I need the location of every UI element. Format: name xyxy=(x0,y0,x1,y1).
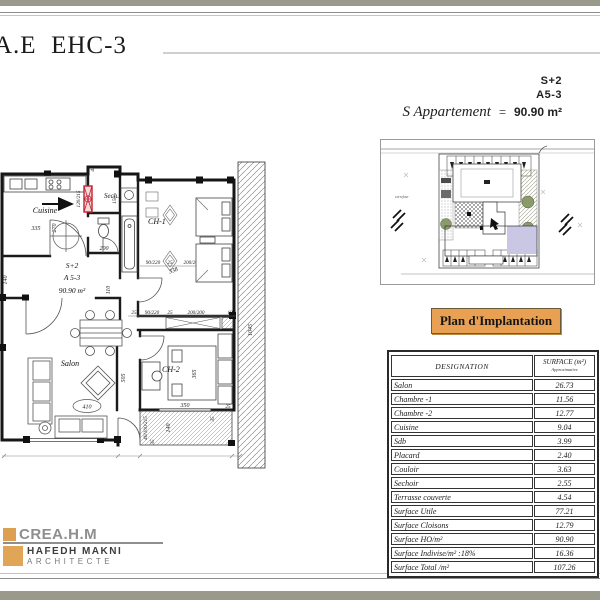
dim-a1: 90/220 xyxy=(146,260,161,266)
col-surface-label: SURFACE (m²) xyxy=(543,358,586,366)
surface-cell: 12.77 xyxy=(534,407,595,419)
core-mark-2 xyxy=(467,212,471,216)
surface-cell: 9.04 xyxy=(534,421,595,433)
designation-cell: Placard xyxy=(391,449,533,461)
table-row: Surface Total /m² 107.26 xyxy=(391,561,595,573)
designation-cell: Sechoir xyxy=(391,477,533,489)
room-salon: Salon xyxy=(61,359,79,368)
designation-cell: Salon xyxy=(391,379,533,391)
red-vent-window xyxy=(84,186,92,212)
dim-b3: 200/200 xyxy=(187,310,204,316)
room-cuisine: Cuisine xyxy=(33,206,58,215)
surface-cell: 107.26 xyxy=(534,561,595,573)
table-row: Cuisine 9.04 xyxy=(391,421,595,433)
table-row: Sechoir 2.55 xyxy=(391,477,595,489)
dim-410: 410 xyxy=(83,404,92,411)
dim-338: 338 xyxy=(167,267,178,276)
col-designation: DESIGNATION xyxy=(391,355,533,377)
bathtub xyxy=(122,216,137,272)
street-curve xyxy=(539,146,547,153)
table-row: Sdb 3.99 xyxy=(391,435,595,447)
plan-implantation-banner: Plan d'Implantation xyxy=(431,308,561,334)
designation-cell: Sdb xyxy=(391,435,533,447)
designation-cell: Surface Utile xyxy=(391,505,533,517)
unit-info-block: S+2 A5-3 xyxy=(536,74,562,102)
dim-b0: 25 xyxy=(131,310,137,316)
planter-box-2 xyxy=(441,190,451,198)
surface-cell: 90.90 xyxy=(534,533,595,545)
logo-name-row: HAFEDH MAKNI ARCHITECTE xyxy=(3,546,173,567)
banner-label: Plan d'Implantation xyxy=(440,313,552,329)
table-row: Chambre -2 12.77 xyxy=(391,407,595,419)
designation-cell: Cuisine xyxy=(391,421,533,433)
kitchen-counter xyxy=(4,176,86,192)
col-surface: SURFACE (m²) Approximative xyxy=(534,355,595,377)
floor-plan-panel: 1045 40/100/215 140 35 35 xyxy=(0,158,270,473)
table-row: Salon 26.73 xyxy=(391,379,595,391)
plan-unit-label: S+2 A 5-3 90.90 m² xyxy=(59,261,86,295)
dim-365: 365 xyxy=(192,370,198,380)
dim-505: 505 xyxy=(121,374,127,383)
bottom-border-band xyxy=(0,591,600,600)
road-label: carrefour xyxy=(395,195,409,199)
rug-diamond xyxy=(81,366,115,400)
site-plan-drawing: carrefour xyxy=(381,140,594,284)
neighbor-wall-hatch xyxy=(238,162,265,468)
unit-code: A5-3 xyxy=(536,88,562,102)
top-border-band xyxy=(0,0,600,6)
apartment-label: S Appartement xyxy=(402,104,490,121)
dim-200a: 200 xyxy=(100,246,109,252)
unit-type: S+2 xyxy=(536,74,562,88)
highlighted-unit xyxy=(507,226,537,254)
dim-410-bubble: 410 xyxy=(73,400,101,413)
top-rule-2 xyxy=(0,15,600,16)
logo-square-small xyxy=(3,528,16,541)
table-row: Placard 2.40 xyxy=(391,449,595,461)
dim-335: 335 xyxy=(31,226,41,232)
designation-cell: Couloir xyxy=(391,463,533,475)
dim-25e: 25 xyxy=(225,404,231,410)
dim-150: 150 xyxy=(112,196,118,204)
room-ch2: CH-2 xyxy=(162,365,180,374)
logo-brand: CREA.H.M xyxy=(19,528,97,541)
designation-cell: Surface Indivise/m² :18% xyxy=(391,547,533,559)
architect-name: HAFEDH MAKNI xyxy=(27,546,122,557)
dim-b4: 10 xyxy=(227,310,233,316)
room-ch1: CH-1 xyxy=(148,217,166,226)
placard xyxy=(166,318,233,329)
dim-35a: 35 xyxy=(210,416,216,422)
dim-b1: 90/220 xyxy=(145,310,160,316)
designation-cell: Surface Total /m² xyxy=(391,561,533,573)
surface-cell: 3.99 xyxy=(534,435,595,447)
top-rule-1 xyxy=(0,12,600,13)
bottom-dim-line xyxy=(2,454,242,458)
surface-cell: 3.63 xyxy=(534,463,595,475)
apartment-area: 90.90 m² xyxy=(514,105,562,119)
designation-cell: Surface HO/m² xyxy=(391,533,533,545)
logo-square-large xyxy=(3,546,23,566)
plan-unit-type: S+2 xyxy=(66,261,79,270)
core-mark xyxy=(484,180,490,184)
dim-120-215: 120/215 xyxy=(76,190,82,207)
planter-box-1 xyxy=(441,178,451,183)
surface-cell: 12.79 xyxy=(534,519,595,531)
floor-plan-drawing: 1045 40/100/215 140 35 35 xyxy=(0,158,270,473)
dim-40-100-215: 40/100/215 xyxy=(142,416,149,440)
bottom-rule-2 xyxy=(0,578,600,579)
page-title: A.E EHC-3 xyxy=(0,32,127,60)
road-hash-right xyxy=(559,214,573,235)
ch1-beds xyxy=(196,198,232,282)
logo-brand-row: CREA.H.M xyxy=(3,528,163,544)
architect-title: ARCHITECTE xyxy=(27,557,122,567)
designation-cell: Terrasse couverte xyxy=(391,491,533,503)
plan-unit-code: A 5-3 xyxy=(63,273,81,282)
table-row: Surface Indivise/m² :18% 16.36 xyxy=(391,547,595,559)
surface-table: DESIGNATION SURFACE (m²) Approximative S… xyxy=(387,350,599,578)
table-header-row: DESIGNATION SURFACE (m²) Approximative xyxy=(391,355,595,377)
dim-270: 270 xyxy=(52,224,58,233)
surface-table-body: Salon 26.73 Chambre -1 11.56 Chambre -2 … xyxy=(391,379,595,573)
plan-unit-area: 90.90 m² xyxy=(59,286,86,295)
surface-cell: 2.40 xyxy=(534,449,595,461)
toilet xyxy=(98,218,109,238)
table-row: Terrasse couverte 4.54 xyxy=(391,491,595,503)
table-row: Surface Cloisons 12.79 xyxy=(391,519,595,531)
dim-350: 350 xyxy=(180,403,190,409)
designation-cell: Surface Cloisons xyxy=(391,519,533,531)
dim-b2: 25 xyxy=(167,310,173,316)
designation-cell: Chambre -2 xyxy=(391,407,533,419)
sofa-left xyxy=(28,358,52,424)
site-plan-panel: carrefour xyxy=(380,139,595,285)
designation-cell: Chambre -1 xyxy=(391,393,533,405)
dim-35b: 35 xyxy=(150,439,156,445)
surface-cell: 11.56 xyxy=(534,393,595,405)
col-surface-sub: Approximative xyxy=(537,366,592,373)
dim-140-left: 140 xyxy=(2,276,9,285)
dim-45: 45 xyxy=(89,166,96,172)
table-row: Surface HO/m² 90.90 xyxy=(391,533,595,545)
table-row: Chambre -1 11.56 xyxy=(391,393,595,405)
washbasin xyxy=(121,188,137,202)
tree-left xyxy=(441,219,452,230)
dim-140-terrace: 140 xyxy=(165,424,172,433)
surface-cell: 16.36 xyxy=(534,547,595,559)
dim-110: 110 xyxy=(106,286,112,295)
dim-1045: 1045 xyxy=(247,324,254,336)
table-row: Surface Utile 77.21 xyxy=(391,505,595,517)
apartment-surface-row: S Appartement = 90.90 m² xyxy=(402,104,562,121)
building-porch xyxy=(469,256,503,264)
surface-cell: 4.54 xyxy=(534,491,595,503)
equals-sign: = xyxy=(499,105,506,119)
surface-cell: 77.21 xyxy=(534,505,595,517)
architect-logo: CREA.H.M HAFEDH MAKNI ARCHITECTE xyxy=(3,528,173,567)
ch2-furniture xyxy=(142,334,232,404)
surface-cell: 2.55 xyxy=(534,477,595,489)
dining-table xyxy=(71,311,132,356)
surface-cell: 26.73 xyxy=(534,379,595,391)
road-hash-left xyxy=(391,210,405,231)
table-row: Couloir 3.63 xyxy=(391,463,595,475)
title-rule xyxy=(163,52,600,54)
tree-right-1 xyxy=(522,196,534,208)
